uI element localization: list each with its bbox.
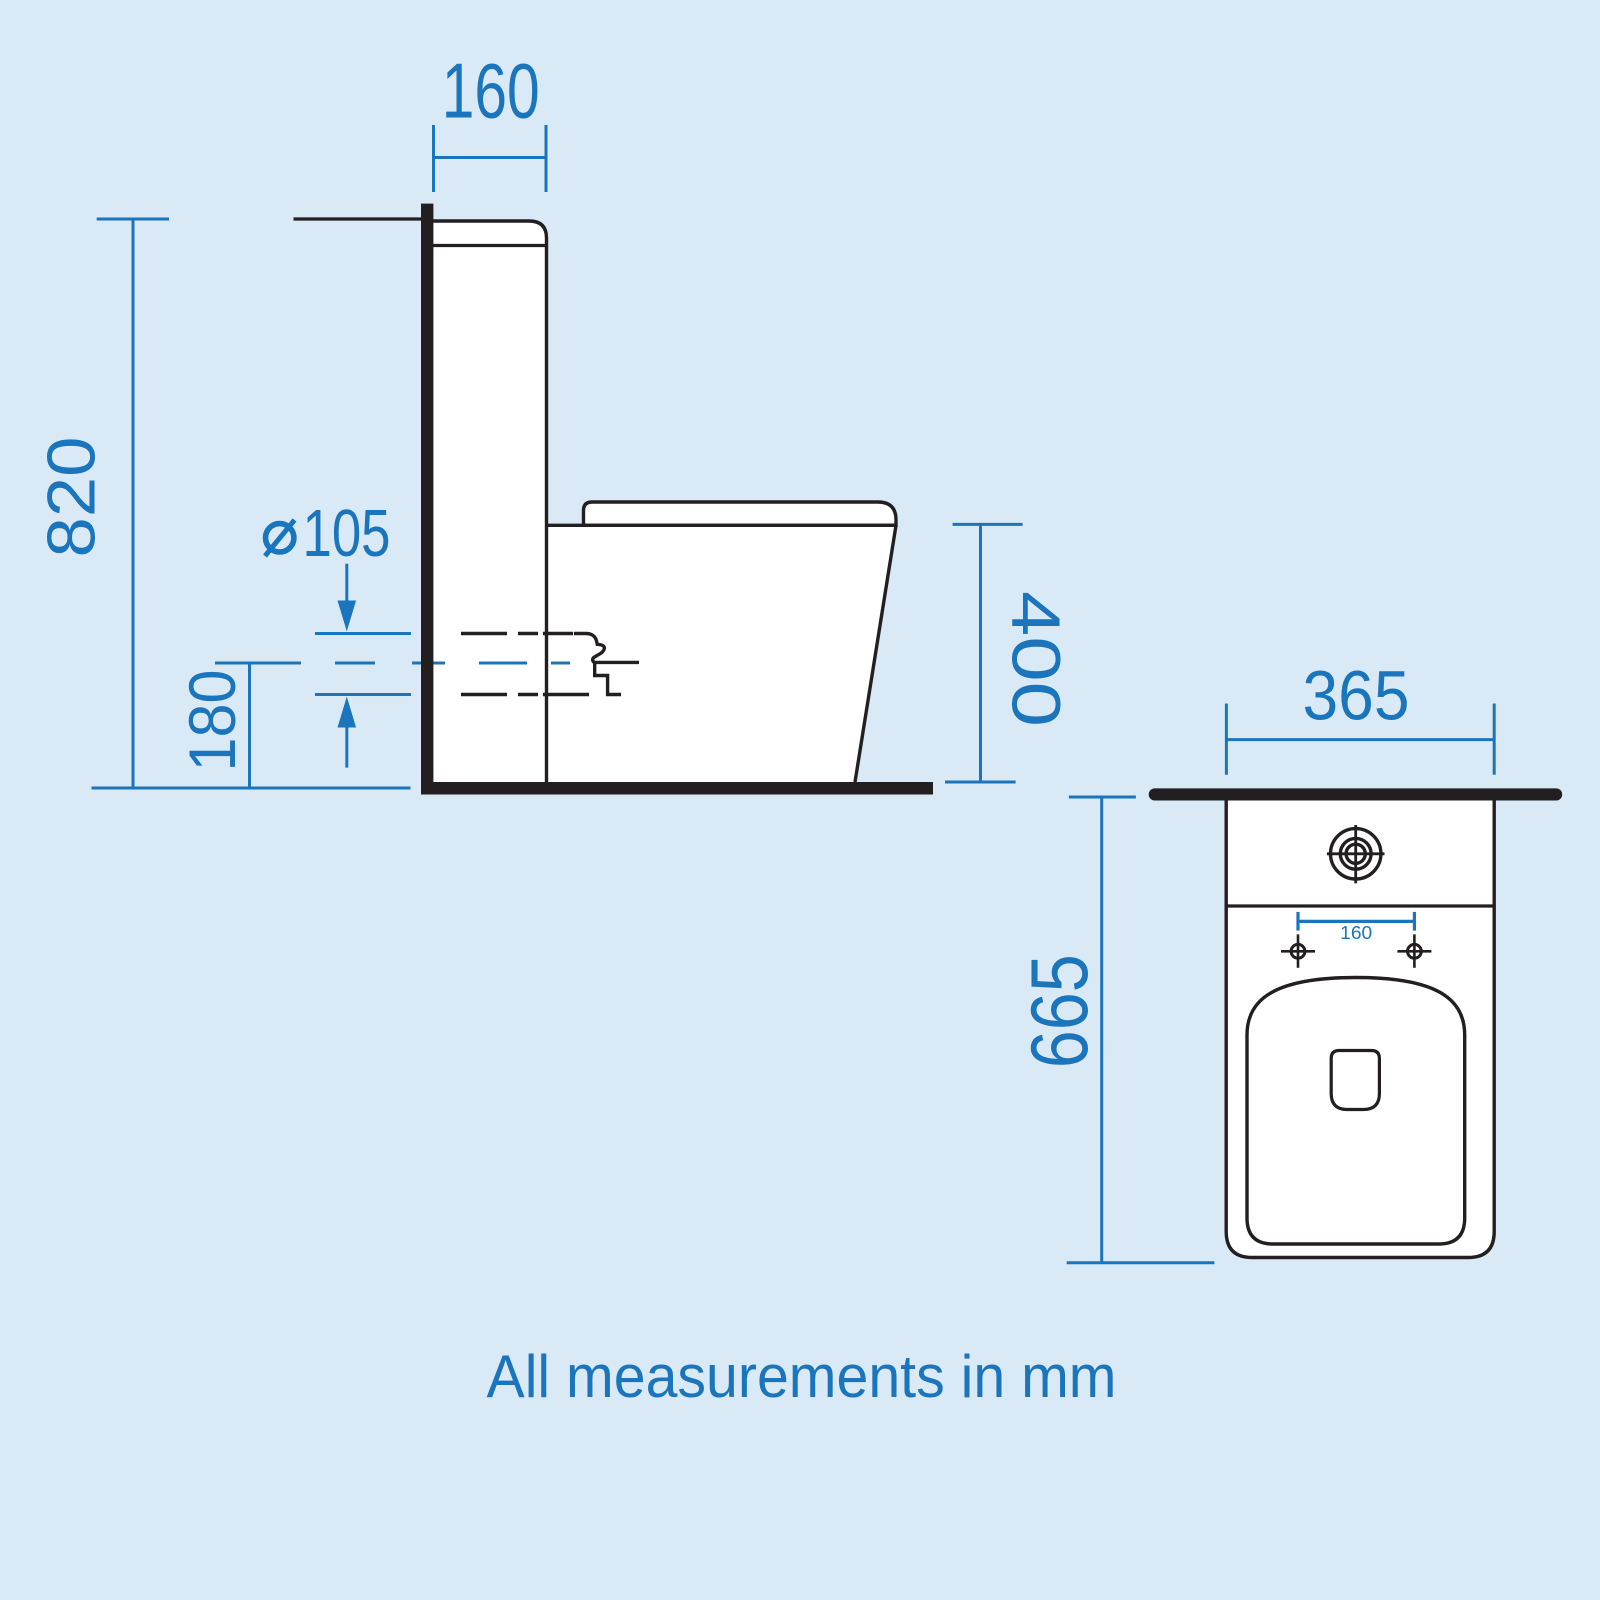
- svg-text:365: 365: [1303, 657, 1410, 735]
- svg-text:665: 665: [1015, 954, 1105, 1068]
- svg-text:820: 820: [33, 437, 109, 558]
- svg-text:180: 180: [175, 670, 249, 772]
- svg-text:400: 400: [998, 591, 1075, 727]
- svg-text:160: 160: [1340, 923, 1372, 943]
- svg-text:160: 160: [442, 49, 540, 135]
- svg-text:All measurements in mm: All measurements in mm: [487, 1343, 1117, 1410]
- svg-text:105: 105: [303, 496, 391, 571]
